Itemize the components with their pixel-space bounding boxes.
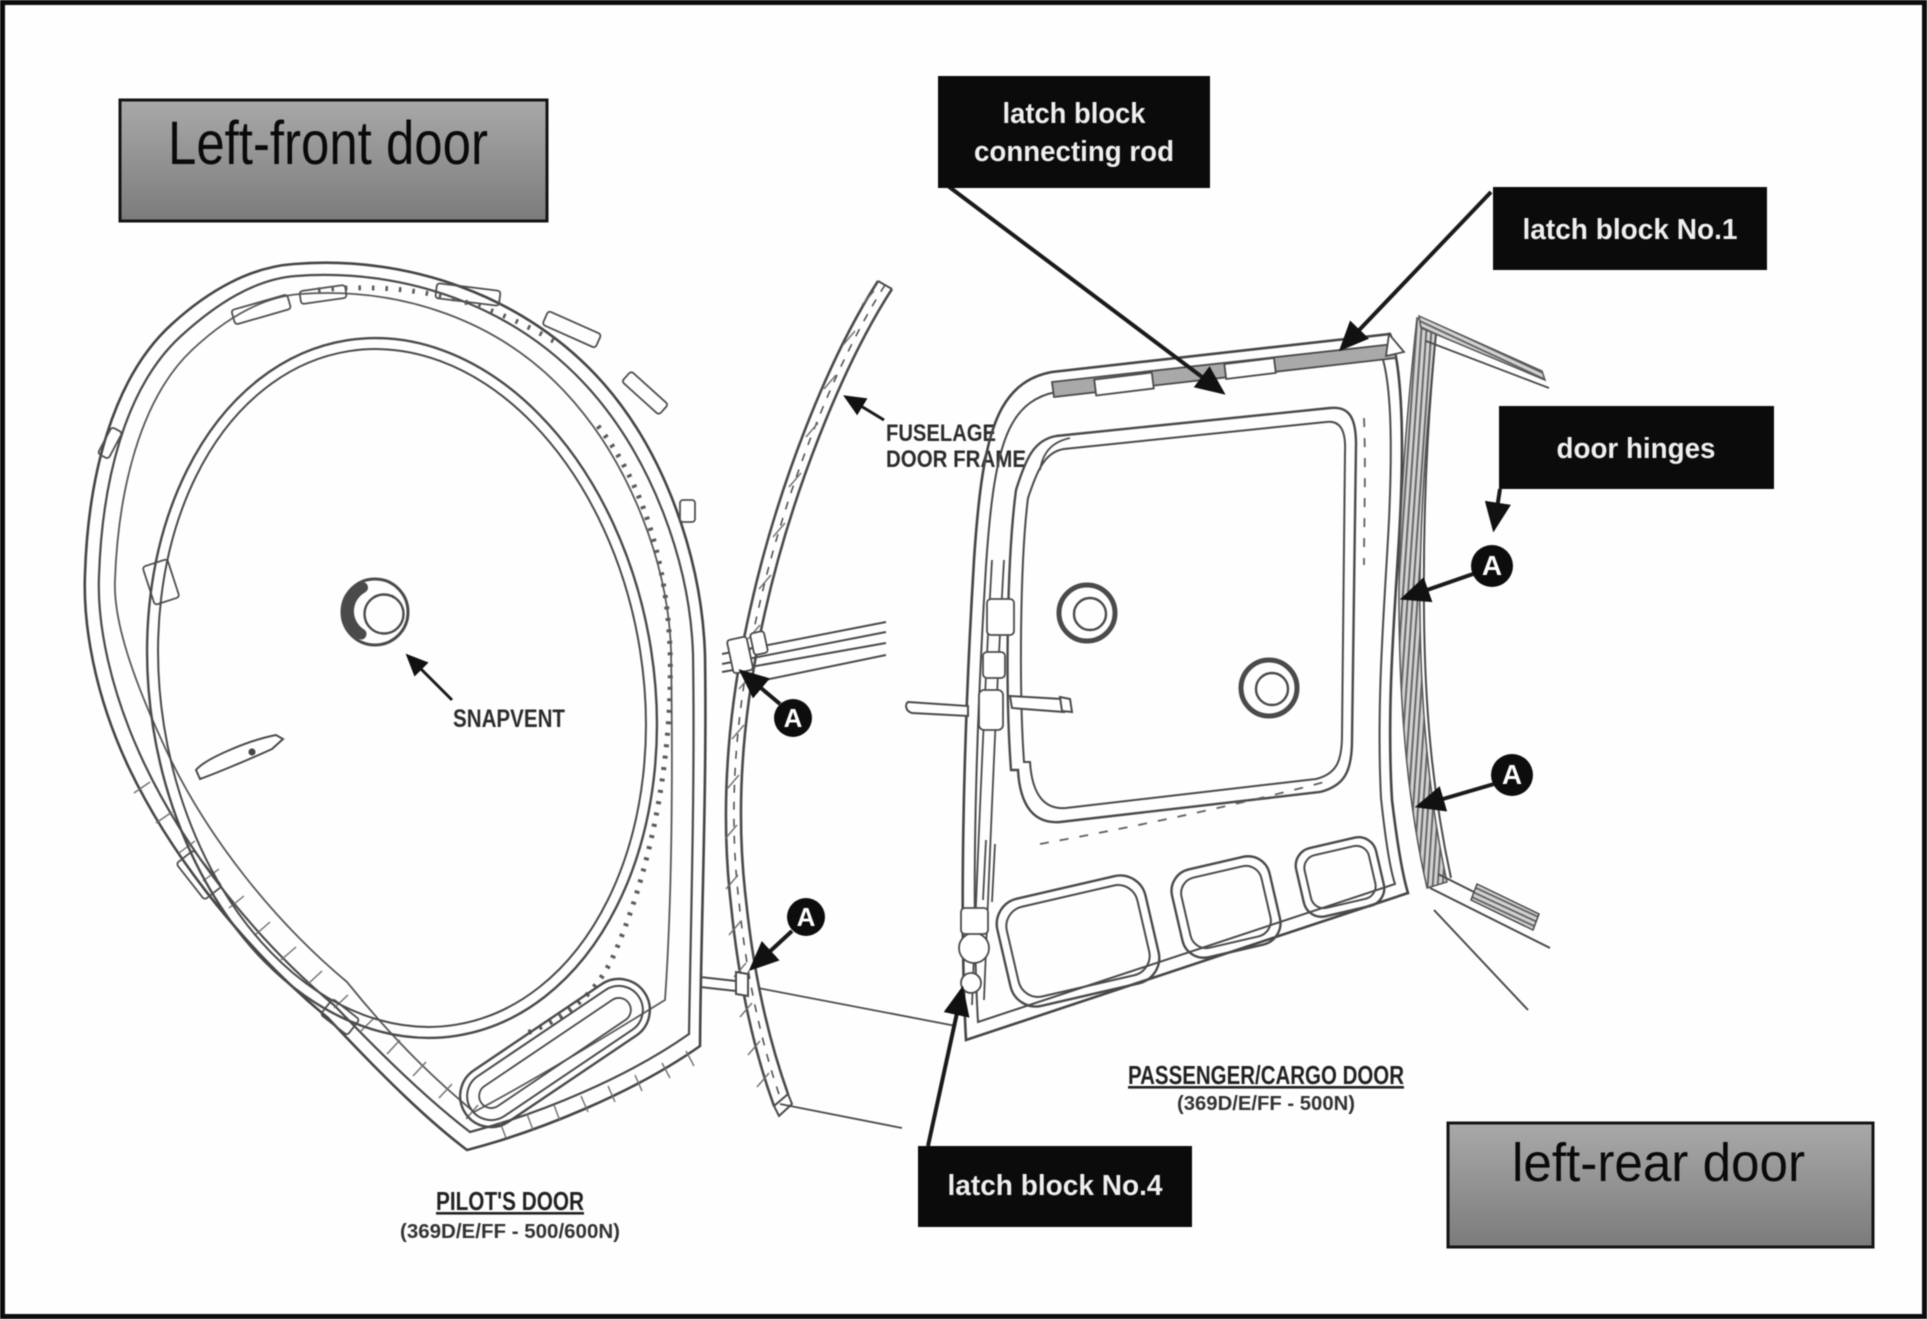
svg-text:latch block: latch block bbox=[1003, 98, 1147, 130]
svg-text:(369D/E/FF - 500N): (369D/E/FF - 500N) bbox=[1177, 1093, 1355, 1115]
svg-text:left-rear door: left-rear door bbox=[1512, 1133, 1805, 1194]
svg-text:Left-front door: Left-front door bbox=[168, 109, 488, 177]
svg-text:PILOT'S DOOR: PILOT'S DOOR bbox=[436, 1186, 584, 1216]
svg-text:connecting rod: connecting rod bbox=[974, 136, 1174, 168]
svg-text:A: A bbox=[1502, 759, 1522, 790]
svg-text:A: A bbox=[797, 902, 816, 932]
svg-text:DOOR FRAME: DOOR FRAME bbox=[886, 446, 1026, 473]
svg-text:FUSELAGE: FUSELAGE bbox=[886, 420, 996, 447]
svg-text:latch block No.4: latch block No.4 bbox=[948, 1170, 1163, 1202]
svg-text:PASSENGER/CARGO DOOR: PASSENGER/CARGO DOOR bbox=[1128, 1060, 1404, 1090]
svg-text:SNAPVENT: SNAPVENT bbox=[453, 705, 565, 733]
svg-text:A: A bbox=[784, 703, 803, 733]
svg-text:door hinges: door hinges bbox=[1557, 433, 1716, 465]
svg-text:A: A bbox=[1482, 550, 1502, 581]
svg-text:(369D/E/FF - 500/600N): (369D/E/FF - 500/600N) bbox=[400, 1221, 620, 1243]
svg-text:latch block No.1: latch block No.1 bbox=[1523, 214, 1738, 246]
